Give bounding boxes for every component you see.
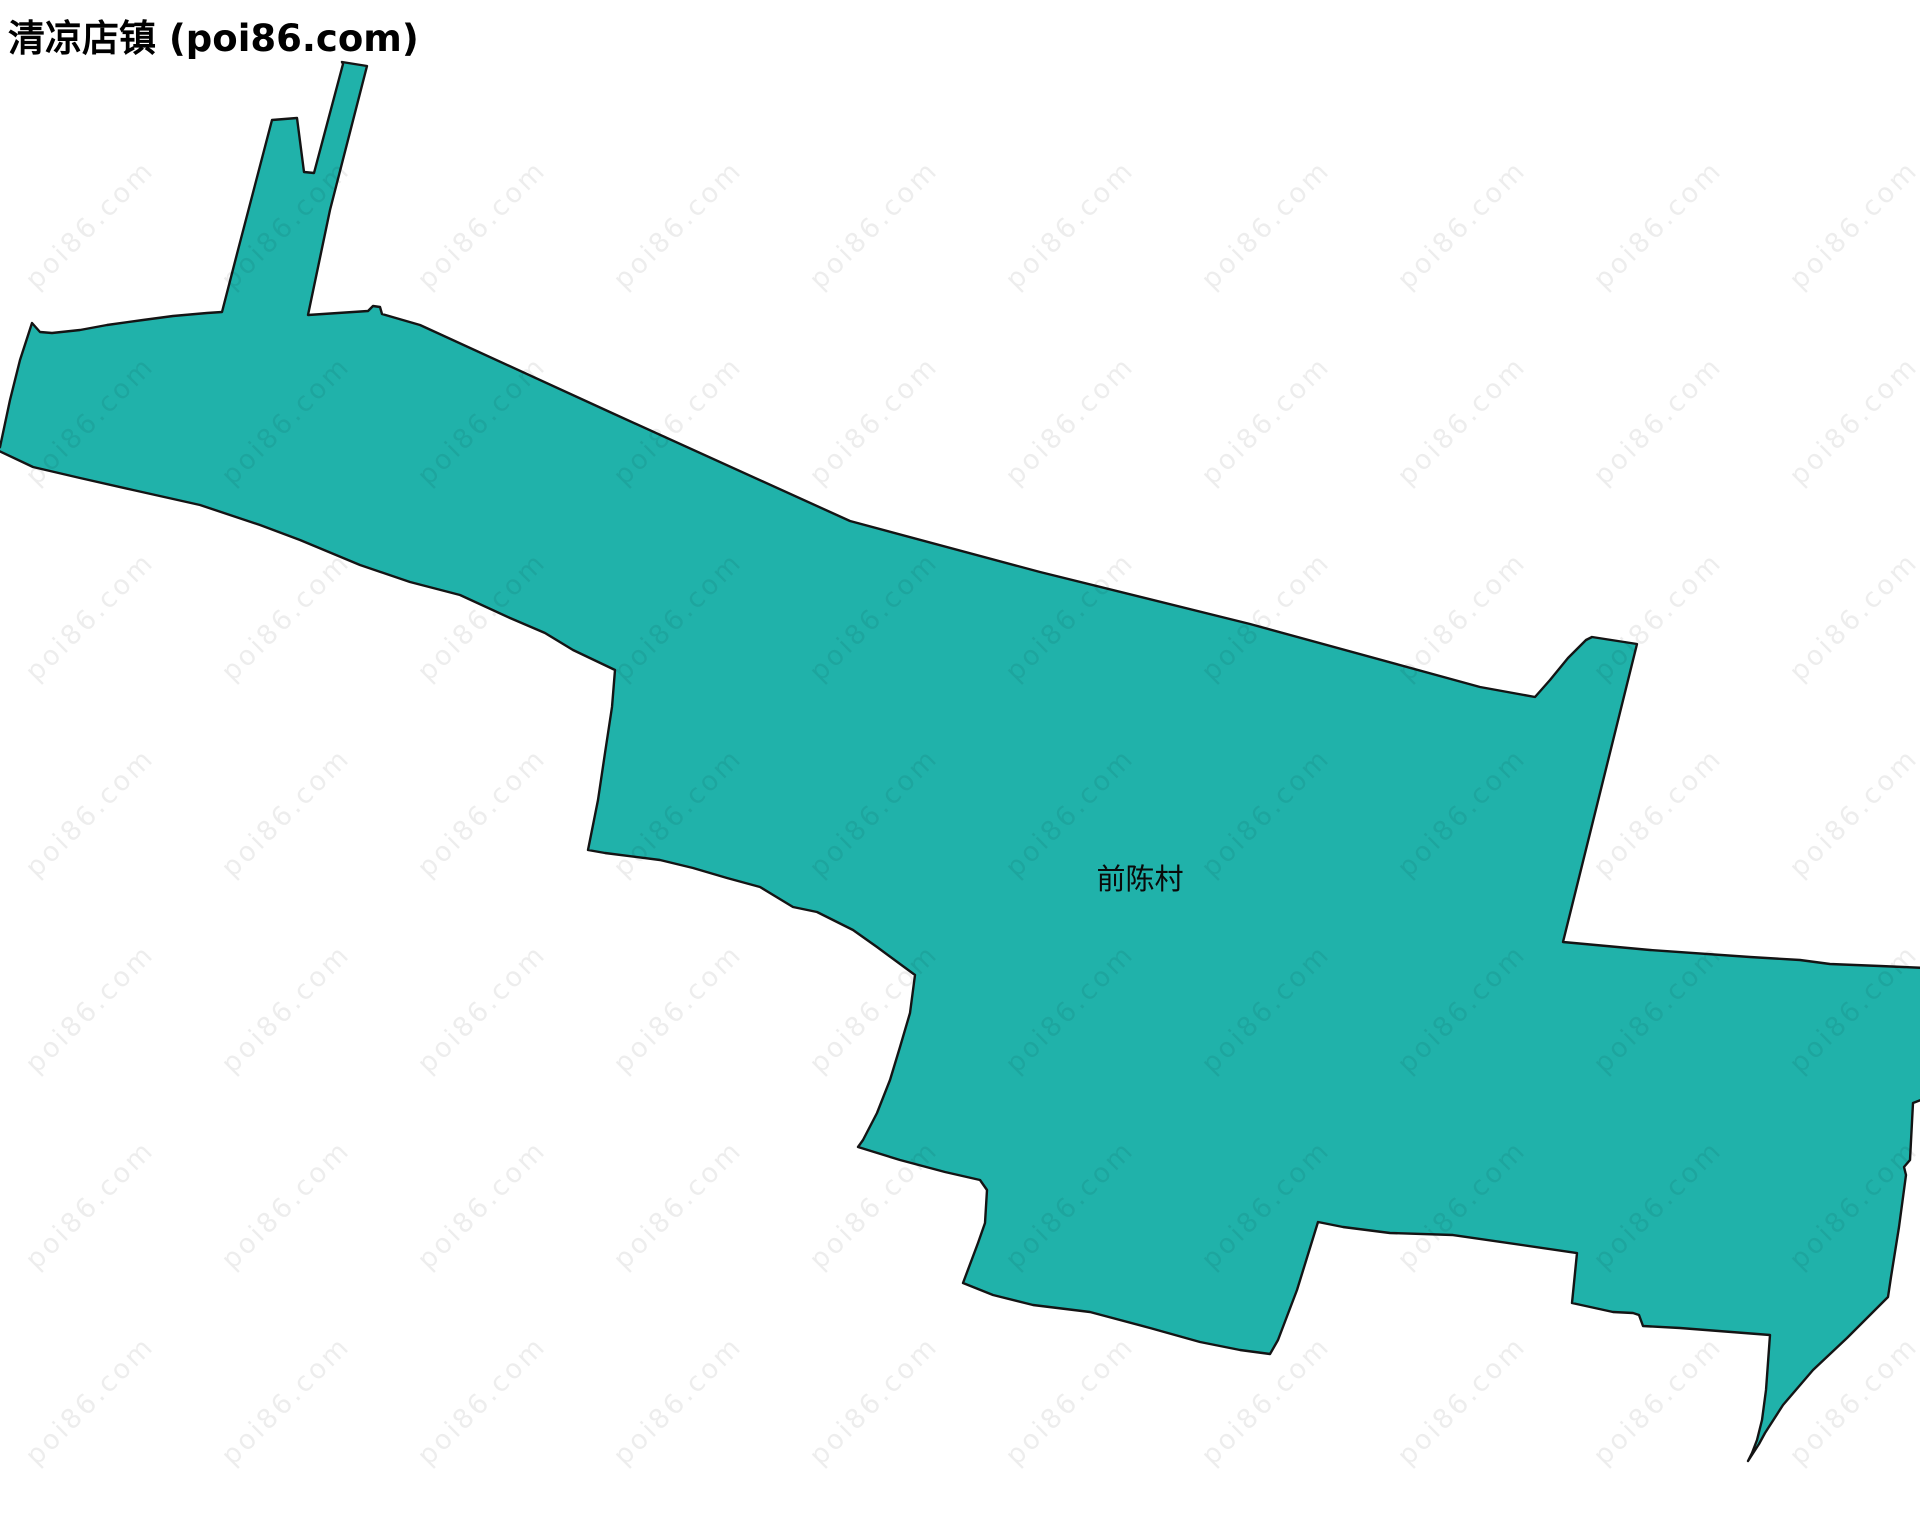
village-label: 前陈村 [1096,856,1183,898]
region-polygon [0,62,1920,1461]
boundary-map [0,0,1920,1528]
map-page: poi86.compoi86.compoi86.compoi86.compoi8… [0,0,1920,1528]
page-title: 清凉店镇 (poi86.com) [8,8,419,62]
